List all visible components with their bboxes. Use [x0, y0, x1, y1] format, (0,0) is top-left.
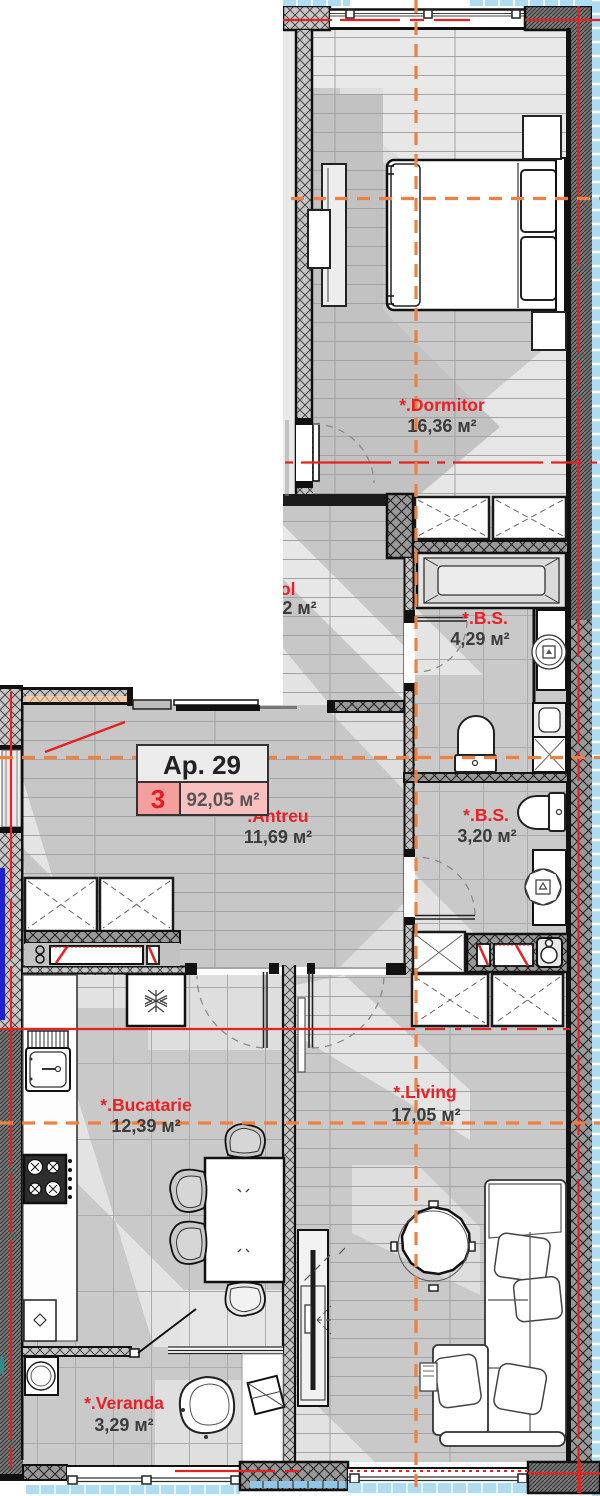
svg-text:12,39 м²: 12,39 м² [111, 1116, 180, 1136]
svg-text:17,05 м²: 17,05 м² [391, 1105, 460, 1125]
svg-text:16,36 м²: 16,36 м² [407, 416, 476, 436]
svg-text:4,29 м²: 4,29 м² [450, 629, 509, 649]
svg-text:3,20 м²: 3,20 м² [457, 826, 516, 846]
svg-text:3,29 м²: 3,29 м² [94, 1415, 153, 1435]
svg-text:*.Dormitor: *.Dormitor [399, 395, 485, 415]
svg-text:*.Veranda: *.Veranda [84, 1393, 164, 1413]
svg-text:*.B.S.: *.B.S. [462, 608, 508, 628]
svg-text:Ap. 29: Ap. 29 [163, 750, 241, 780]
svg-text:*.Living: *.Living [393, 1082, 456, 1102]
svg-text:11,69 м²: 11,69 м² [244, 827, 312, 847]
svg-text:*.B.S.: *.B.S. [463, 805, 509, 825]
svg-text:*.Bucatarie: *.Bucatarie [100, 1095, 192, 1115]
svg-text:3: 3 [151, 784, 165, 814]
svg-text:92,05 м²: 92,05 м² [186, 790, 259, 811]
